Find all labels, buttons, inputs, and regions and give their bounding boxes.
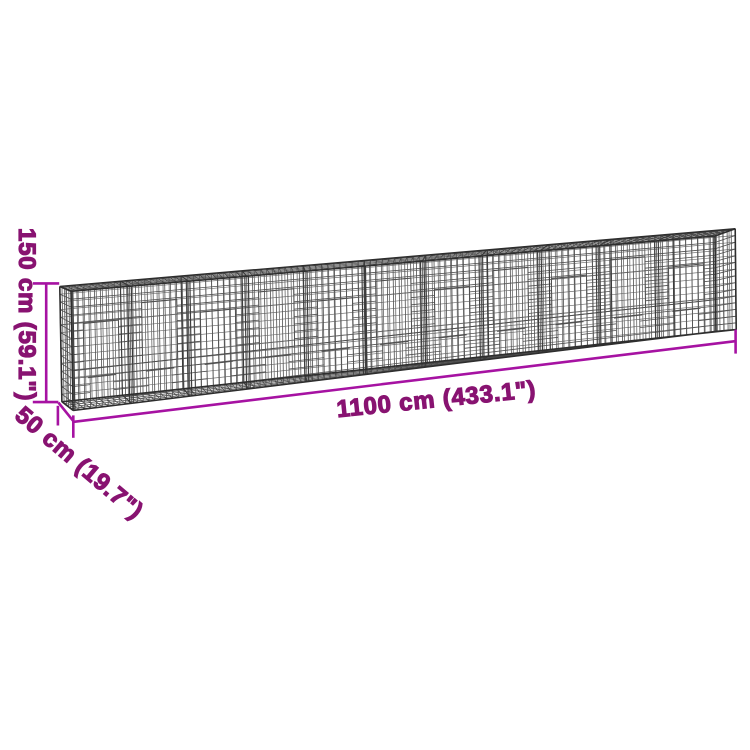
svg-text:150 cm (59.1"): 150 cm (59.1") [13,228,40,401]
